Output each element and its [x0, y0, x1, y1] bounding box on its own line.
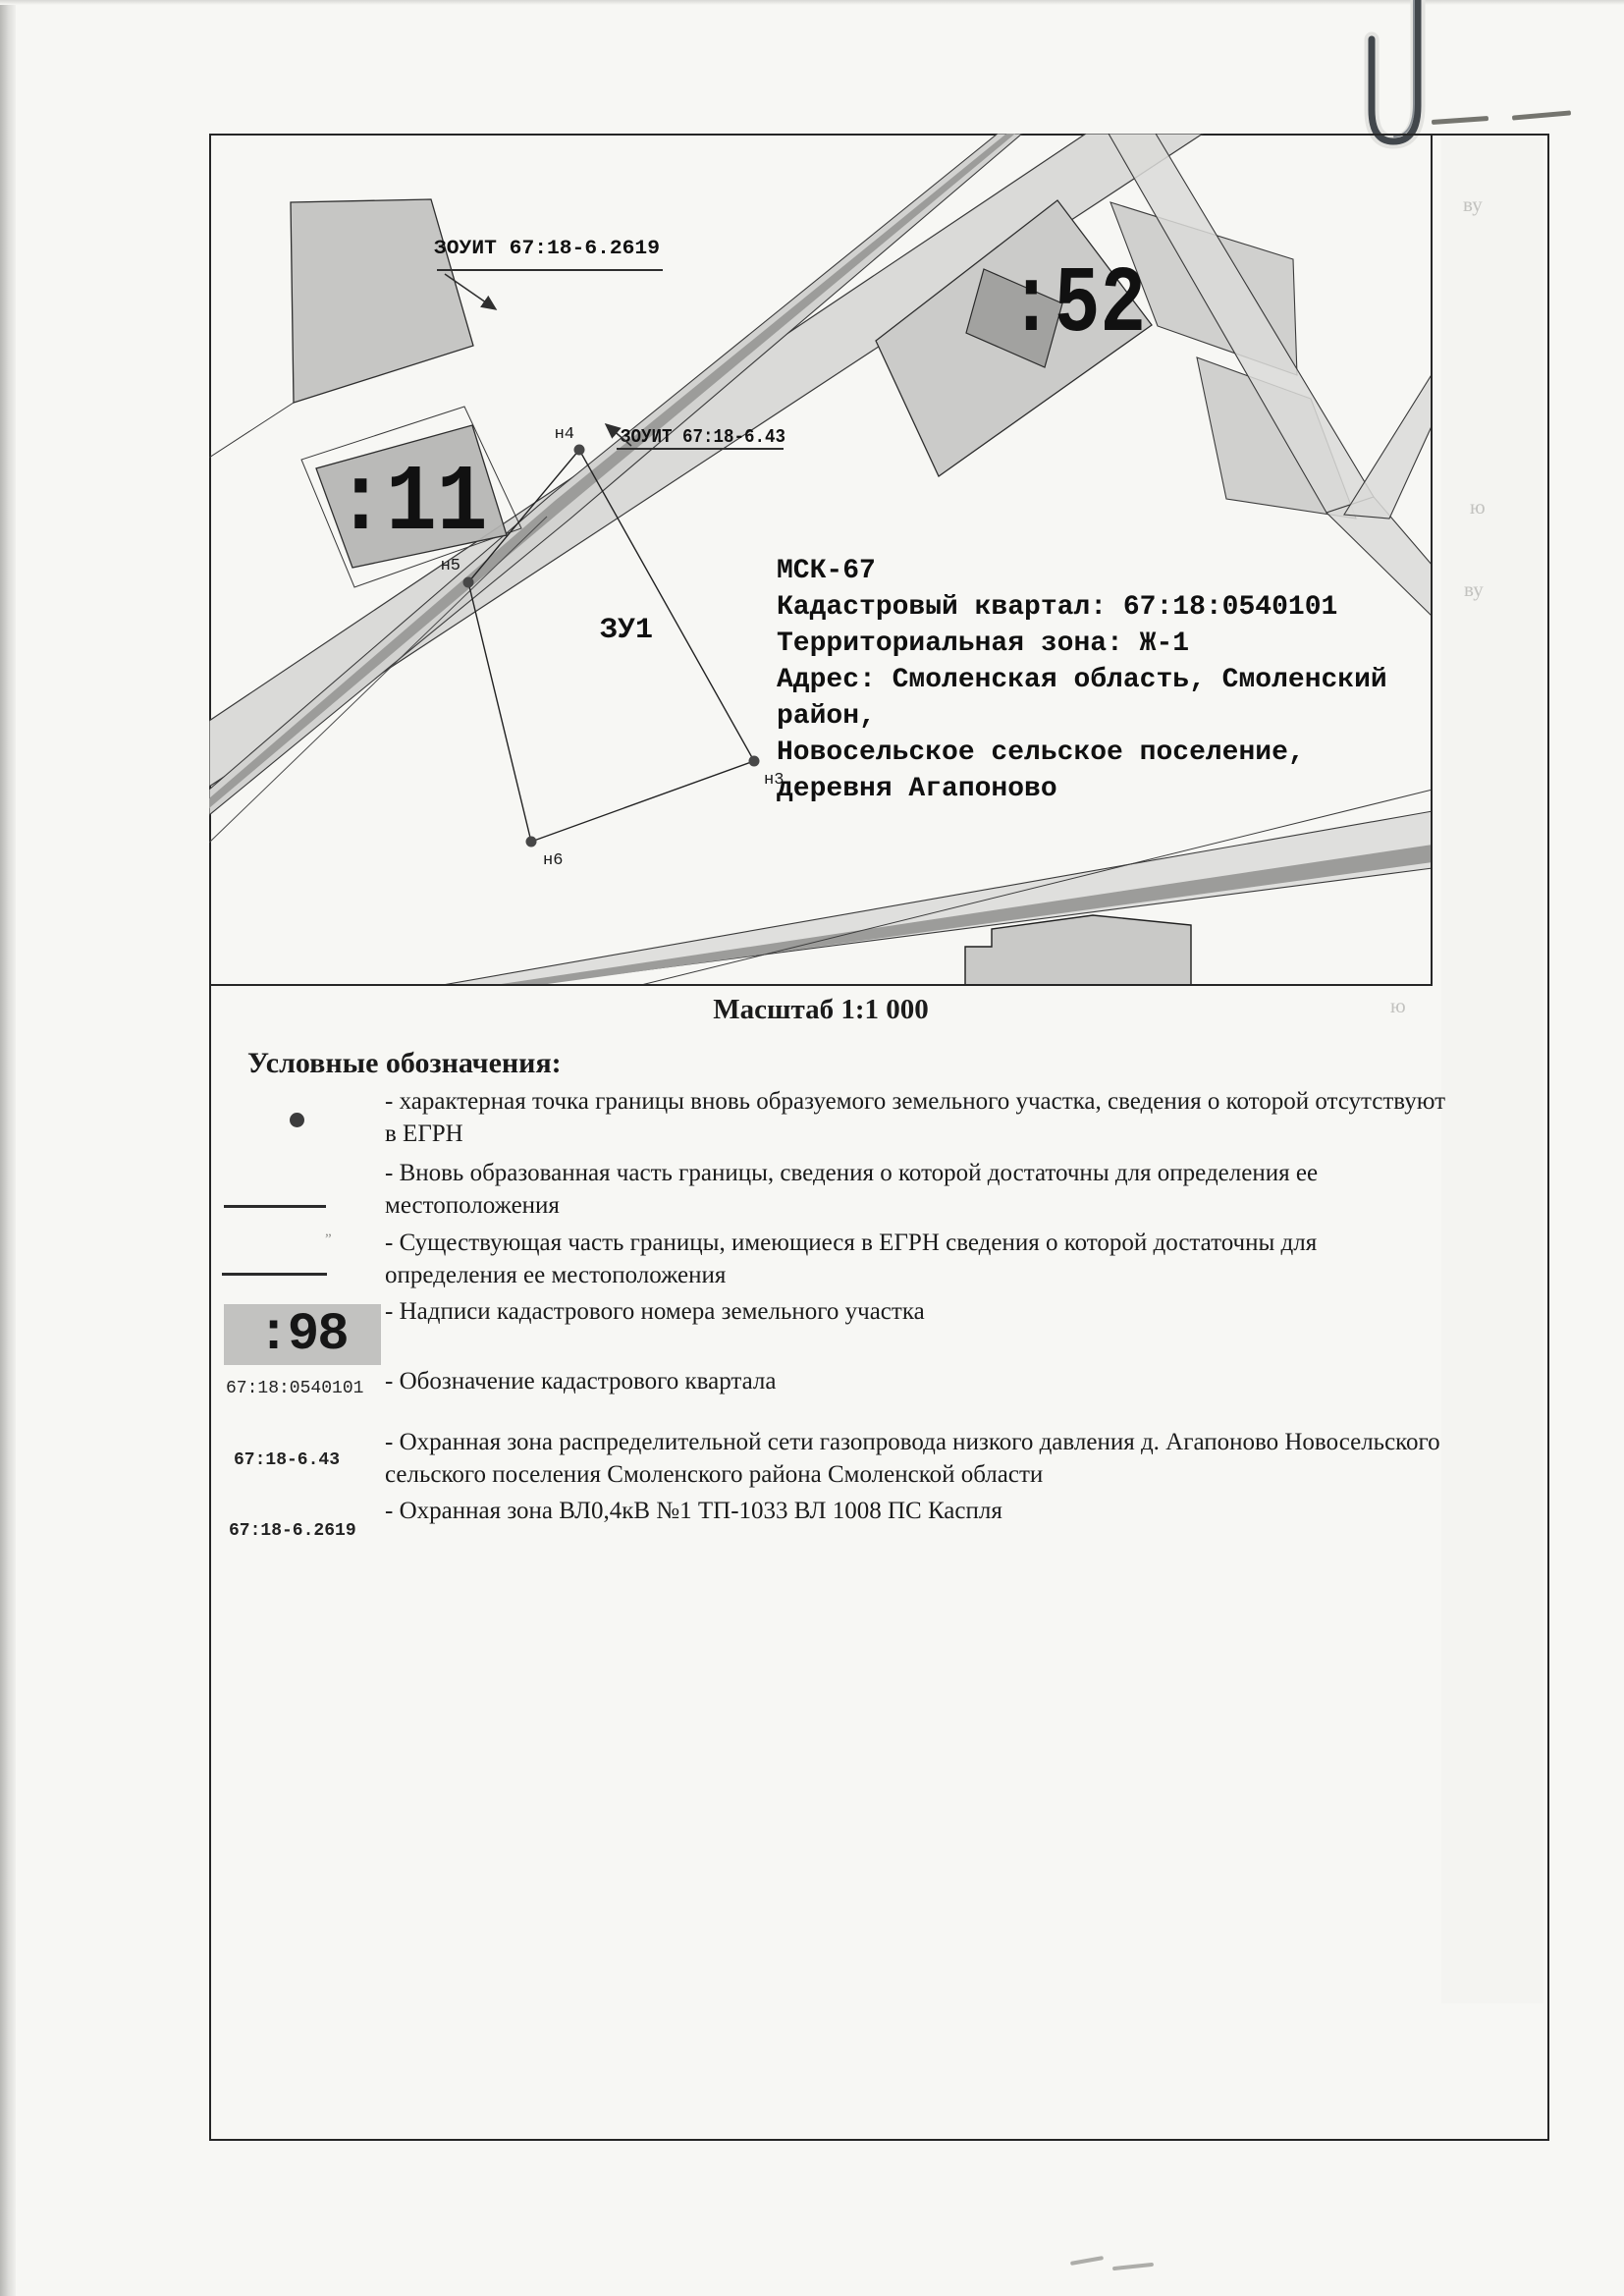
legend-line: - Существующая часть границы, имеющиеся …: [385, 1227, 1543, 1259]
legend-symbol-parcel-number-label: :98: [257, 1305, 347, 1365]
legend-item-text: - Охранная зона распределительной сети г…: [385, 1426, 1543, 1491]
building-bottom: [965, 915, 1191, 986]
scan-artifact-dash: [1112, 2263, 1154, 2270]
map-info-block: МСК-67 Кадастровый квартал: 67:18:054010…: [777, 556, 1387, 804]
point-label-n6: н6: [543, 851, 563, 870]
parcel-number-zu1: ЗУ1: [600, 614, 653, 647]
legend-title: Условные обозначения:: [247, 1047, 562, 1080]
scan-artifact-dash: [1512, 110, 1571, 120]
point-dot-n3: [749, 756, 760, 767]
boundary-line: [209, 517, 547, 843]
legend-item-text: - Вновь образованная часть границы, свед…: [385, 1157, 1543, 1222]
point-dot-n4: [574, 445, 585, 456]
legend-symbol-parcel-number: :98: [224, 1304, 381, 1365]
point-label-n4: н4: [555, 425, 574, 444]
legend-item-text: - характерная точка границы вновь образу…: [385, 1085, 1543, 1150]
point-dot-n5: [463, 577, 474, 588]
legend-symbol-quarter-number: 67:18:0540101: [226, 1379, 363, 1398]
parcel-number-52: :52: [1008, 251, 1146, 358]
legend-line: определения ее местоположения: [385, 1259, 1543, 1291]
scan-left-edge: [0, 0, 16, 2296]
info-line: Адрес: Смоленская область, Смоленский: [777, 665, 1387, 695]
info-line: Территориальная зона: Ж-1: [777, 629, 1189, 659]
legend-symbol-line-new: [224, 1205, 326, 1208]
legend-item-text: - Существующая часть границы, имеющиеся …: [385, 1227, 1543, 1291]
info-line: МСК-67: [777, 556, 876, 586]
legend-line: - Охранная зона распределительной сети г…: [385, 1426, 1543, 1458]
legend-line: - Охранная зона ВЛ0,4кВ №1 ТП-1033 ВЛ 10…: [385, 1495, 1543, 1527]
legend-line: - Надписи кадастрового номера земельного…: [385, 1295, 1543, 1328]
info-line: Кадастровый квартал: 67:18:0540101: [777, 592, 1337, 623]
legend-symbol-power-zone: 67:18-6.2619: [229, 1521, 356, 1541]
ghost-text: ю: [1470, 495, 1486, 519]
legend-line: в ЕГРН: [385, 1118, 1543, 1150]
road-band-branch-up: [1344, 373, 1433, 519]
zouit-label-power: ЗОУИТ 67:18-6.2619: [434, 238, 660, 260]
document-page: н4 н5 н3 н6 ЗОУИТ 67:18-6.2619 ЗОУИТ 67:…: [0, 0, 1624, 2296]
boundary-line: [209, 403, 294, 458]
point-label-n5: н5: [441, 557, 460, 575]
legend-line: - Вновь образованная часть границы, свед…: [385, 1157, 1543, 1189]
ghost-text: ву: [1463, 192, 1483, 217]
legend-line: местоположения: [385, 1189, 1543, 1222]
legend-symbol-gas-zone: 67:18-6.43: [234, 1450, 340, 1470]
scale-caption: Масштаб 1:1 000: [209, 994, 1433, 1026]
legend-line: - Обозначение кадастрового квартала: [385, 1365, 1543, 1397]
scan-artifact-dash: [1070, 2256, 1104, 2266]
legend-item-text: - Обозначение кадастрового квартала: [385, 1365, 1543, 1397]
point-dot-n6: [526, 837, 537, 847]
legend-symbol-line-existing: [222, 1273, 327, 1276]
info-line: Новосельское сельское поселение,: [777, 738, 1305, 768]
info-line: район,: [777, 701, 876, 732]
legend-item-text: - Охранная зона ВЛ0,4кВ №1 ТП-1033 ВЛ 10…: [385, 1495, 1543, 1527]
legend-line: - характерная точка границы вновь образу…: [385, 1085, 1543, 1118]
ghost-text: ву: [1464, 577, 1484, 602]
info-line: деревня Агапоново: [777, 774, 1057, 804]
cadastral-map: н4 н5 н3 н6 ЗОУИТ 67:18-6.2619 ЗОУИТ 67:…: [209, 134, 1433, 986]
scan-artifact: „: [325, 1224, 332, 1240]
parcel-number-11: :11: [336, 450, 488, 557]
legend-symbol-point-dot: [290, 1113, 304, 1127]
legend-item-text: - Надписи кадастрового номера земельного…: [385, 1295, 1543, 1328]
ghost-text: ю: [1390, 994, 1406, 1018]
legend-line: сельского поселения Смоленского района С…: [385, 1458, 1543, 1491]
road-band-bottom: [437, 811, 1433, 986]
zouit-label-gas: ЗОУИТ 67:18-6.43: [621, 426, 785, 448]
parcel-topleft: [291, 199, 473, 403]
